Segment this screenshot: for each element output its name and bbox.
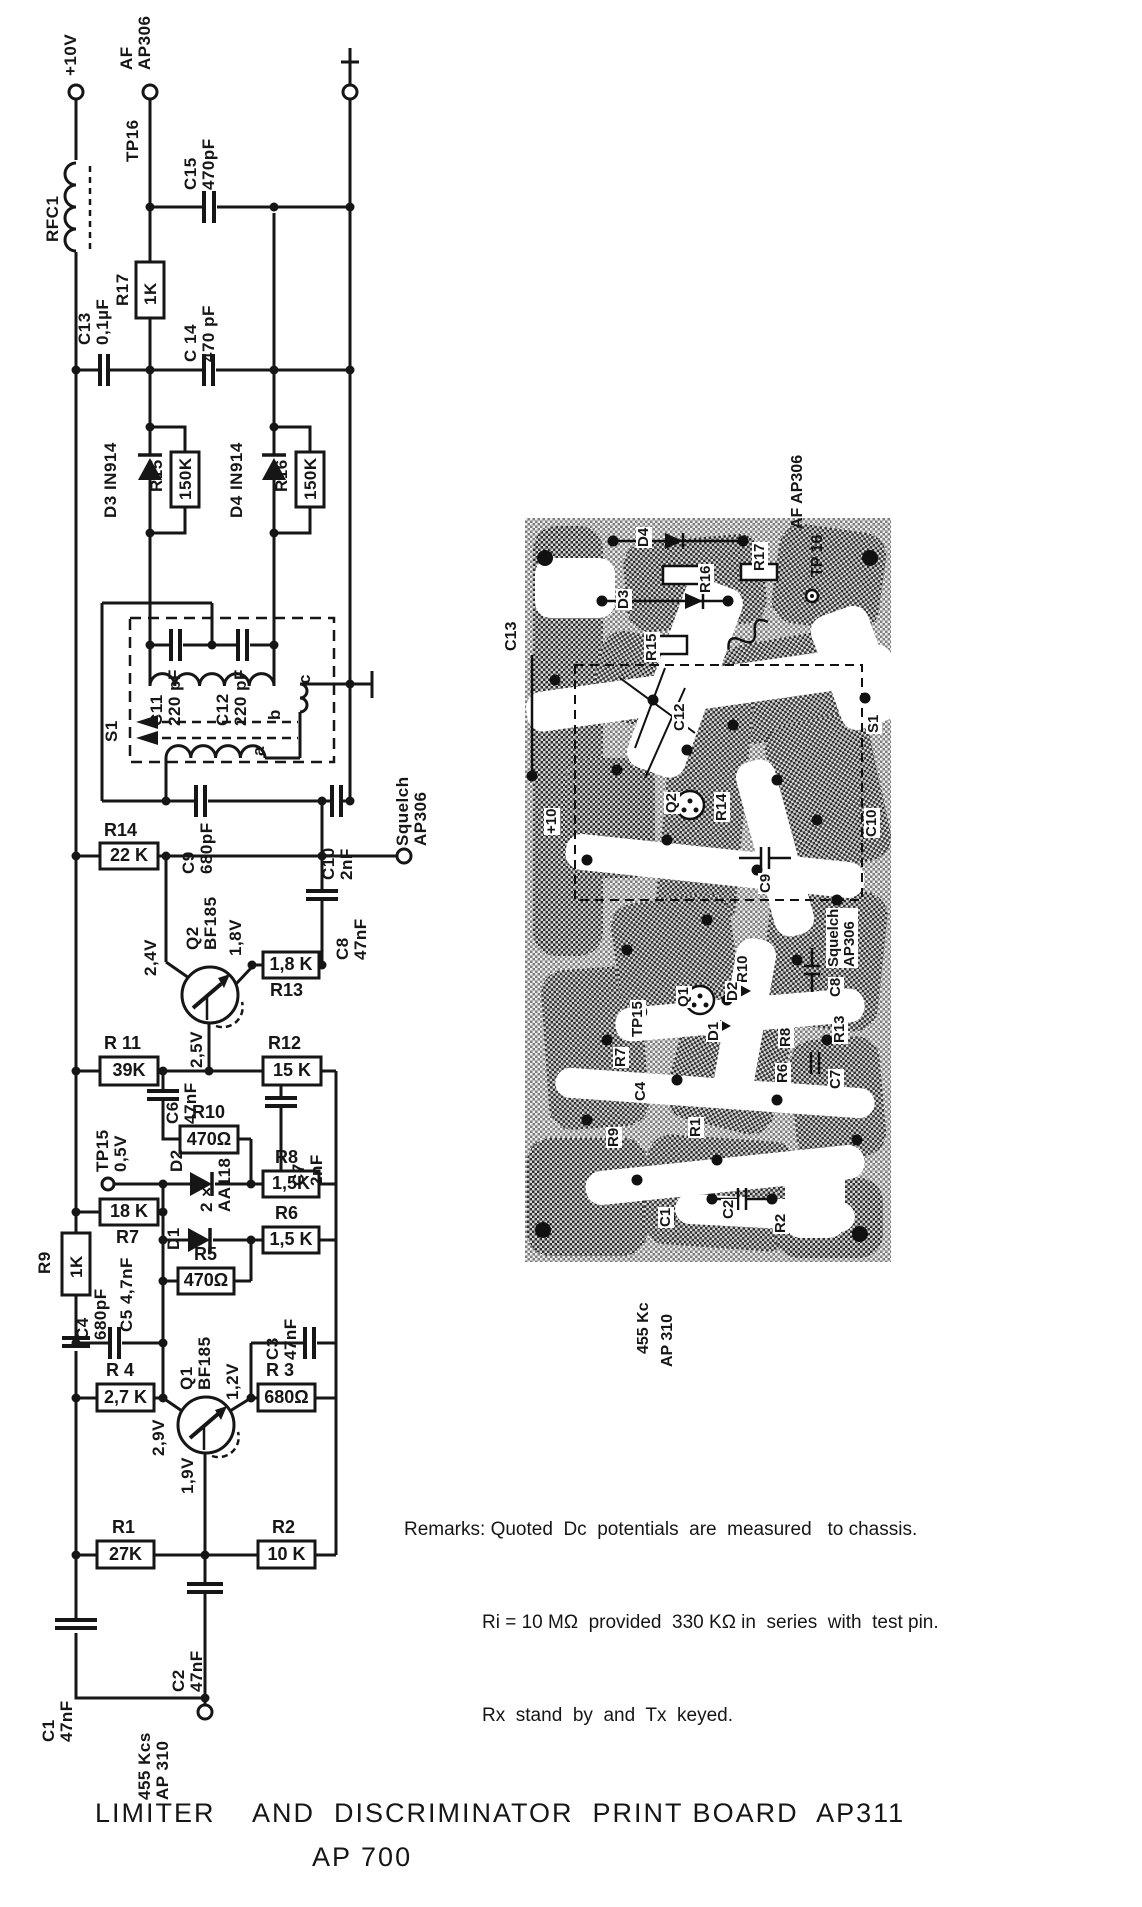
label-r5: R5 bbox=[194, 1244, 217, 1265]
remarks-line3: Rx stand by and Tx keyed. bbox=[482, 1700, 949, 1731]
solder-pad bbox=[772, 1095, 783, 1106]
solder-pad bbox=[767, 1194, 778, 1205]
pcb-label-c10: C10 bbox=[864, 808, 880, 838]
pcb-label-tp16: TP 16 bbox=[810, 534, 826, 578]
value-r14: 22 K bbox=[100, 845, 158, 866]
junction-dot bbox=[146, 529, 155, 538]
junction-dot bbox=[346, 203, 355, 212]
pcb-label-c7: C7 bbox=[828, 1069, 844, 1090]
junction-dot bbox=[270, 641, 279, 650]
junction-dot bbox=[270, 203, 279, 212]
junction-dot bbox=[146, 203, 155, 212]
label-r9: R9 bbox=[36, 1251, 54, 1274]
value-r5: 470Ω bbox=[178, 1270, 234, 1291]
label-r8: R8 bbox=[275, 1147, 298, 1168]
pcb-label-r6: R6 bbox=[775, 1063, 791, 1084]
pcb-label-r15: R15 bbox=[644, 632, 660, 662]
junction-dot bbox=[201, 1551, 210, 1560]
value-r4: 2,7 K bbox=[97, 1387, 154, 1408]
solder-pad bbox=[597, 596, 608, 607]
label-c13: C13 0,1µF bbox=[76, 299, 112, 345]
label-q1: Q1 BF185 bbox=[178, 1336, 214, 1390]
pcb-label-r1: R1 bbox=[688, 1117, 704, 1138]
junction-dot bbox=[146, 366, 155, 375]
label-d2: D2 bbox=[168, 1149, 186, 1172]
label-c10: C10 2nF bbox=[320, 847, 356, 880]
label-r1: R1 bbox=[112, 1517, 135, 1538]
value-r1: 27K bbox=[97, 1544, 154, 1565]
label-r11: R 11 bbox=[104, 1033, 141, 1054]
page-subtitle: AP 700 bbox=[312, 1842, 412, 1873]
label-r10: R10 bbox=[192, 1102, 225, 1123]
solder-pad bbox=[738, 536, 749, 547]
label-r7: R7 bbox=[116, 1227, 139, 1248]
label-c15: C15 470pF bbox=[182, 138, 218, 190]
junction-dot bbox=[247, 1180, 256, 1189]
label-tp15: TP15 0,5V bbox=[94, 1129, 130, 1172]
junction-dot bbox=[159, 1277, 168, 1286]
pcb-label-d3: D3 bbox=[616, 589, 632, 610]
pcb-label-d2: D2 bbox=[725, 981, 741, 1002]
label-aa118: 2 × AA118 bbox=[198, 1158, 234, 1212]
value-r9: 1K bbox=[68, 1255, 86, 1278]
junction-dot bbox=[72, 852, 81, 861]
label-c3: C3 47nF bbox=[264, 1318, 300, 1360]
label-squelch: Squelch AP306 bbox=[394, 776, 430, 846]
solder-pad bbox=[582, 855, 593, 866]
pcb-label-af-ap306: AF AP306 bbox=[790, 454, 806, 530]
junction-dot bbox=[162, 852, 171, 861]
pcb-label-tp15: TP15 bbox=[630, 1000, 646, 1038]
label-winding-b: b bbox=[266, 709, 284, 720]
terminals bbox=[69, 85, 411, 1719]
junction-dot bbox=[346, 680, 355, 689]
label-c4: C4 680pF bbox=[74, 1288, 110, 1340]
solder-pad bbox=[648, 695, 659, 706]
junction-dot bbox=[159, 1067, 168, 1076]
solder-pad bbox=[582, 1115, 593, 1126]
label-v24: 2,4V bbox=[142, 939, 160, 976]
junction-dot bbox=[72, 1551, 81, 1560]
label-q2: Q2 BF185 bbox=[184, 896, 220, 950]
solder-pad bbox=[537, 550, 553, 566]
terminal-squelch bbox=[397, 849, 411, 863]
pcb-label-r8: R8 bbox=[778, 1027, 794, 1048]
solder-pad bbox=[535, 1222, 551, 1238]
junction-dot bbox=[201, 1694, 210, 1703]
label-af: AF AP306 bbox=[118, 16, 154, 70]
value-r2: 10 K bbox=[258, 1544, 315, 1565]
pcb-outlines bbox=[532, 533, 862, 1210]
pcb-label-r7: R7 bbox=[613, 1047, 629, 1068]
junction-dot bbox=[72, 1067, 81, 1076]
value-r8: 1,5K bbox=[263, 1173, 319, 1194]
pcb-label-q2: Q2 bbox=[664, 792, 680, 814]
value-r15: 150K bbox=[177, 457, 195, 500]
solder-pad bbox=[527, 771, 538, 782]
junction-dot bbox=[159, 1339, 168, 1348]
junction-dot bbox=[208, 641, 217, 650]
label-v29: 2,9V bbox=[150, 1419, 168, 1456]
solder-pad bbox=[723, 596, 734, 607]
pcb-label-r9: R9 bbox=[606, 1127, 622, 1148]
solder-pad bbox=[702, 915, 713, 926]
junction-dot bbox=[346, 366, 355, 375]
label-c1: C1 47nF bbox=[40, 1700, 76, 1742]
transistor-q1 bbox=[178, 1397, 239, 1457]
junction-dot bbox=[146, 423, 155, 432]
pcb-label-r10: R10 bbox=[735, 954, 751, 984]
label-s1: S1 bbox=[103, 720, 121, 742]
label-r2: R2 bbox=[272, 1517, 295, 1538]
junction-dot bbox=[248, 961, 257, 970]
solder-pad bbox=[632, 1175, 643, 1186]
solder-pad bbox=[728, 720, 739, 731]
remarks-text1: Quoted Dc potentials are measured to cha… bbox=[491, 1519, 918, 1540]
label-c9: C9 680pF bbox=[180, 822, 216, 874]
junction-dot bbox=[247, 1394, 256, 1403]
label-c5: C5 4,7nF bbox=[118, 1257, 136, 1332]
terminal-455kcs bbox=[198, 1705, 212, 1719]
label-r4: R 4 bbox=[106, 1360, 134, 1381]
label-r14: R14 bbox=[104, 820, 137, 841]
label-r3: R 3 bbox=[266, 1360, 294, 1381]
solder-pad bbox=[860, 693, 871, 704]
label-v12: 1,2V bbox=[224, 1363, 242, 1400]
pcb-diodes bbox=[638, 533, 814, 1032]
solder-pad bbox=[812, 815, 823, 826]
remarks-block: Remarks: Quoted Dc potentials are measur… bbox=[404, 1452, 949, 1793]
pcb-label-c12: C12 bbox=[672, 702, 688, 732]
label-v25: 2,5V bbox=[188, 1031, 206, 1068]
rfc1-coil bbox=[65, 163, 76, 251]
solder-pad bbox=[832, 895, 843, 906]
pcb-label-c13: C13 bbox=[504, 621, 520, 652]
terminal-chassis bbox=[343, 85, 357, 99]
junction-dot bbox=[270, 423, 279, 432]
label-r13: R13 bbox=[270, 980, 303, 1001]
pcb-caption-455kc: 455 Kc bbox=[636, 1301, 652, 1355]
pcb-label-plus10: +10 bbox=[544, 808, 560, 835]
pcb-label-r2: R2 bbox=[773, 1213, 789, 1234]
pcb-label-c8: C8 bbox=[828, 977, 844, 998]
solder-pad bbox=[712, 1155, 723, 1166]
solder-pad bbox=[682, 745, 693, 756]
s1-c-coil bbox=[300, 684, 307, 712]
solder-pad bbox=[772, 775, 783, 786]
solder-pad bbox=[622, 945, 633, 956]
label-plus10v: +10V bbox=[62, 34, 80, 76]
value-r16: 150K bbox=[302, 457, 320, 500]
label-d1: D1 bbox=[165, 1227, 183, 1250]
junction-dot bbox=[72, 366, 81, 375]
pcb-label-c4: C4 bbox=[633, 1081, 649, 1102]
label-c2: C2 47nF bbox=[170, 1650, 206, 1692]
value-r7: 18 K bbox=[100, 1201, 158, 1222]
label-v18: 1,8V bbox=[227, 919, 245, 956]
solder-pad bbox=[612, 765, 623, 776]
pcb-component-overlay bbox=[525, 518, 891, 1262]
label-r6: R6 bbox=[275, 1203, 298, 1224]
label-r16: R16 bbox=[273, 459, 291, 492]
pcb-label-c9: C9 bbox=[758, 873, 774, 894]
solder-pad bbox=[602, 1035, 613, 1046]
solder-pad bbox=[792, 955, 803, 966]
solder-pad bbox=[852, 1135, 863, 1146]
value-r11: 39K bbox=[100, 1060, 158, 1081]
pcb-label-r16: R16 bbox=[698, 564, 714, 594]
value-r17: 1K bbox=[142, 282, 160, 305]
pcb-label-d1: D1 bbox=[706, 1021, 722, 1042]
label-455kcs: 455 Kcs AP 310 bbox=[136, 1732, 172, 1800]
solder-pad bbox=[852, 1226, 868, 1242]
pcb-label-squelch: Squelch AP306 bbox=[826, 908, 858, 968]
pcb-label-r14: R14 bbox=[714, 792, 730, 822]
solder-pad bbox=[862, 550, 878, 566]
solder-pad bbox=[672, 1075, 683, 1086]
junction-dot bbox=[72, 1208, 81, 1217]
label-d4: D4 IN914 bbox=[228, 442, 246, 518]
remarks-line1: Remarks: Quoted Dc potentials are measur… bbox=[404, 1514, 949, 1545]
label-c8: C8 47nF bbox=[334, 918, 370, 960]
junction-dot bbox=[72, 1394, 81, 1403]
junction-dot bbox=[159, 1394, 168, 1403]
value-r6: 1,5 K bbox=[263, 1229, 319, 1250]
pcb-label-r17: R17 bbox=[752, 542, 768, 572]
pcb-caption-ap310: AP 310 bbox=[660, 1313, 676, 1368]
junction-dot bbox=[346, 797, 355, 806]
solder-pad bbox=[550, 675, 561, 686]
remarks-label: Remarks: bbox=[404, 1519, 485, 1540]
junction-dot bbox=[159, 1208, 168, 1217]
value-r12: 15 K bbox=[263, 1060, 321, 1081]
pcb-label-c1: C1 bbox=[658, 1207, 674, 1228]
junction-dot bbox=[247, 1236, 256, 1245]
label-v19: 1,9V bbox=[179, 1457, 197, 1494]
terminal-plus10v bbox=[69, 85, 83, 99]
label-c12: C12 220 pF bbox=[214, 669, 250, 726]
label-c14: C 14 470 pF bbox=[182, 305, 218, 362]
pcb-label-s1: S1 bbox=[866, 714, 882, 734]
junction-dot bbox=[146, 641, 155, 650]
value-r10: 470Ω bbox=[180, 1129, 238, 1150]
pcb-label-d4: D4 bbox=[636, 527, 652, 548]
label-rfc1: RFC1 bbox=[44, 196, 62, 242]
label-r12: R12 bbox=[268, 1033, 301, 1054]
scanned-schematic-page: +10V RFC1 AF AP306 TP16 C15 470pF R17 1K… bbox=[0, 0, 1142, 1907]
solder-pad bbox=[707, 1194, 718, 1205]
solder-pad bbox=[608, 536, 619, 547]
label-r15: R15 bbox=[148, 459, 166, 492]
junction-dot bbox=[318, 797, 327, 806]
junction-dot bbox=[270, 366, 279, 375]
label-winding-a: a bbox=[250, 746, 268, 756]
junction-dot bbox=[162, 797, 171, 806]
page-title: LIMITER AND DISCRIMINATOR PRINT BOARD AP… bbox=[95, 1798, 905, 1829]
remarks-line2: Ri = 10 MΩ provided 330 KΩ in series wit… bbox=[482, 1607, 949, 1638]
pcb-label-c2: C2 bbox=[721, 1199, 737, 1220]
label-winding-c: c bbox=[296, 674, 314, 684]
label-c11: C11 220 pF bbox=[148, 669, 184, 726]
testpoint-tp15 bbox=[102, 1178, 114, 1190]
terminal-af bbox=[143, 85, 157, 99]
pcb-label-q1: Q1 bbox=[676, 986, 692, 1008]
junction-dot bbox=[270, 529, 279, 538]
pcb-label-r13: R13 bbox=[832, 1014, 848, 1044]
value-r13: 1,8 K bbox=[263, 954, 319, 975]
value-r3: 680Ω bbox=[258, 1387, 315, 1408]
label-r17: R17 bbox=[114, 273, 132, 306]
solder-pad bbox=[662, 835, 673, 846]
label-tp16: TP16 bbox=[124, 119, 142, 162]
junction-dot bbox=[159, 1180, 168, 1189]
transistor-q2 bbox=[182, 967, 243, 1027]
label-d3: D3 IN914 bbox=[102, 442, 120, 518]
